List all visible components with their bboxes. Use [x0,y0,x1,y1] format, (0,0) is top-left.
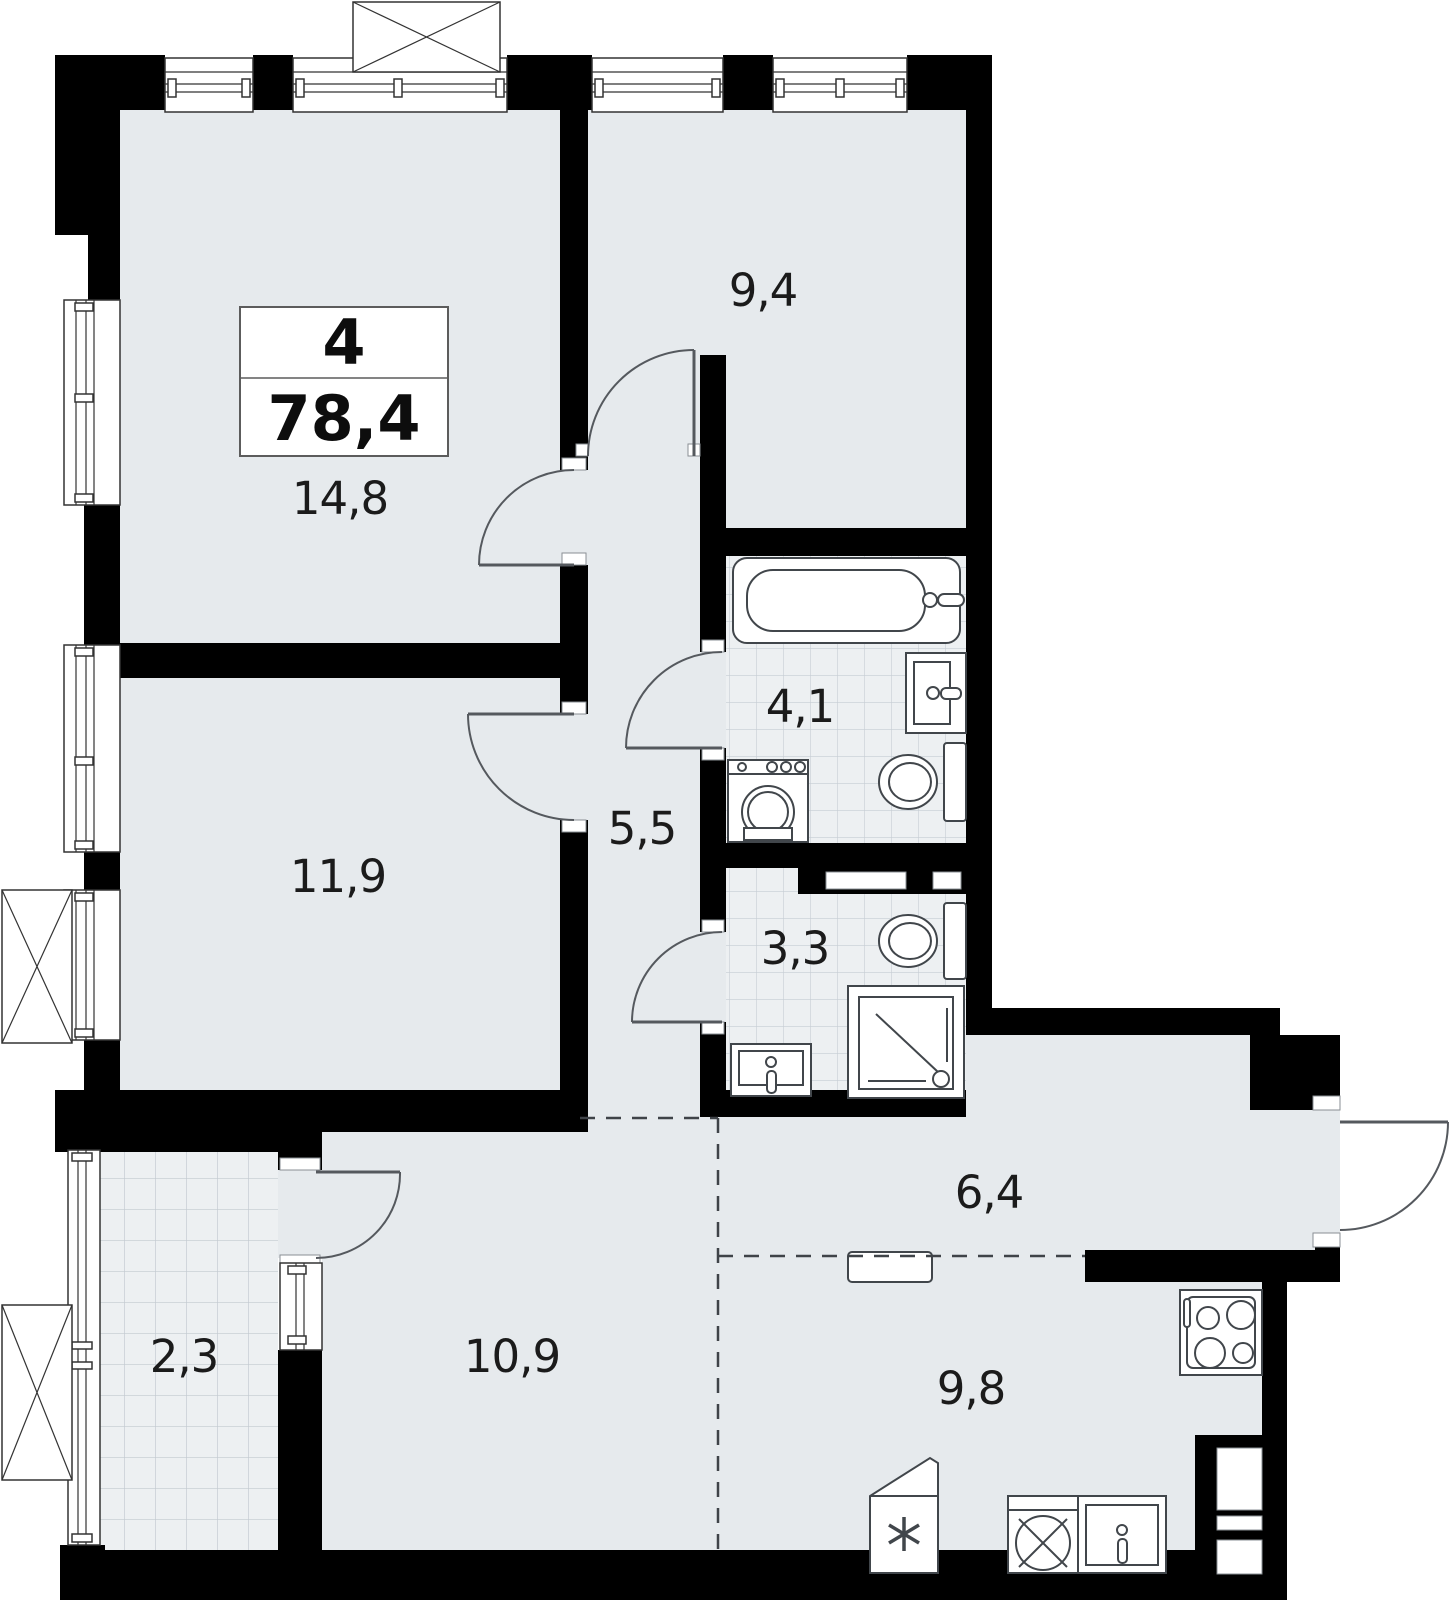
window [64,300,120,505]
entrance-door [1340,1122,1448,1230]
window [64,645,120,852]
window [773,58,907,112]
exterior-unit-box [2,1305,72,1480]
area-label-balcony-2-3: 2,3 [150,1330,219,1383]
exterior-unit-box [353,2,500,72]
total-area-label: 78,4 [268,382,421,455]
exterior-unit-box [2,890,72,1043]
area-label-room-9-4: 9,4 [729,264,798,317]
area-label-hall-5-5: 5,5 [608,802,677,855]
area-label-corridor-6-4: 6,4 [955,1166,1024,1219]
washing-machine-icon [728,760,808,842]
window [165,58,253,112]
area-label-room-11-9: 11,9 [290,850,386,903]
hob-crossed-circle-icon [1008,1496,1078,1573]
window [280,1263,322,1350]
floor-plan-drawing: 4 78,4 14,8 9,4 11,9 5,5 4,1 3,3 6,4 2,3… [0,0,1452,1600]
shower-icon [848,986,964,1098]
rooms-count-label: 4 [322,306,365,379]
floor-plan: 4 78,4 14,8 9,4 11,9 5,5 4,1 3,3 6,4 2,3… [0,0,1452,1600]
area-label-living-10-9: 10,9 [464,1330,560,1383]
stove-icon [1180,1290,1262,1375]
kitchen-sink-icon [1078,1496,1166,1573]
area-label-bath-4-1: 4,1 [766,680,835,733]
area-label-room-14-8: 14,8 [292,472,388,525]
bathtub-icon [733,558,964,643]
balcony-glazing [68,1150,100,1545]
apartment-info-box: 4 78,4 [240,306,448,456]
basin-icon [906,653,966,733]
window [592,58,723,112]
area-label-wc-3-3: 3,3 [761,922,830,975]
area-label-kitchen-9-8: 9,8 [937,1362,1006,1415]
basin-icon [731,1044,811,1096]
